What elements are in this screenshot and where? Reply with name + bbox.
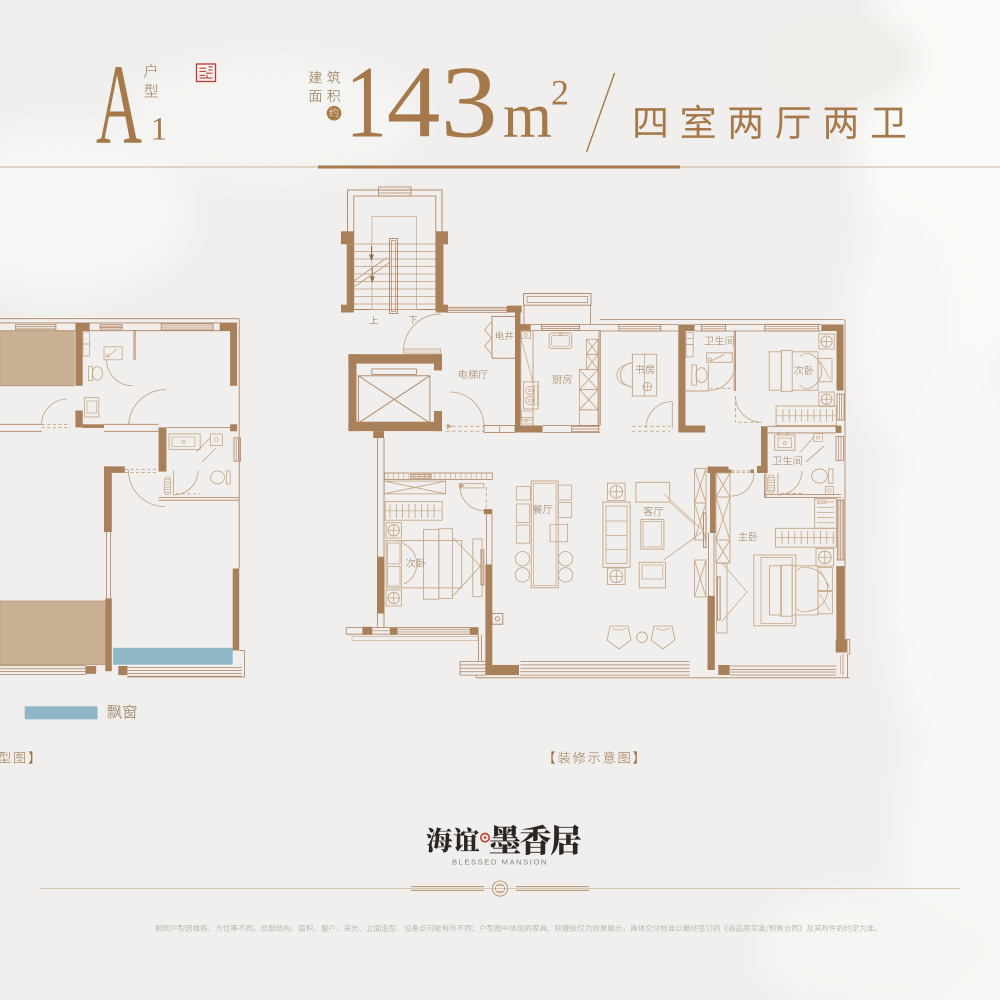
svg-text:3: 3 [441, 46, 498, 160]
svg-text:A: A [96, 40, 142, 167]
svg-text:1: 1 [151, 112, 168, 148]
svg-text:2: 2 [551, 73, 569, 113]
svg-text:m: m [503, 81, 552, 151]
svg-text:4: 4 [387, 46, 441, 160]
svg-text:1: 1 [346, 46, 388, 160]
svg-text:BLESSED MANSION: BLESSED MANSION [452, 858, 548, 867]
